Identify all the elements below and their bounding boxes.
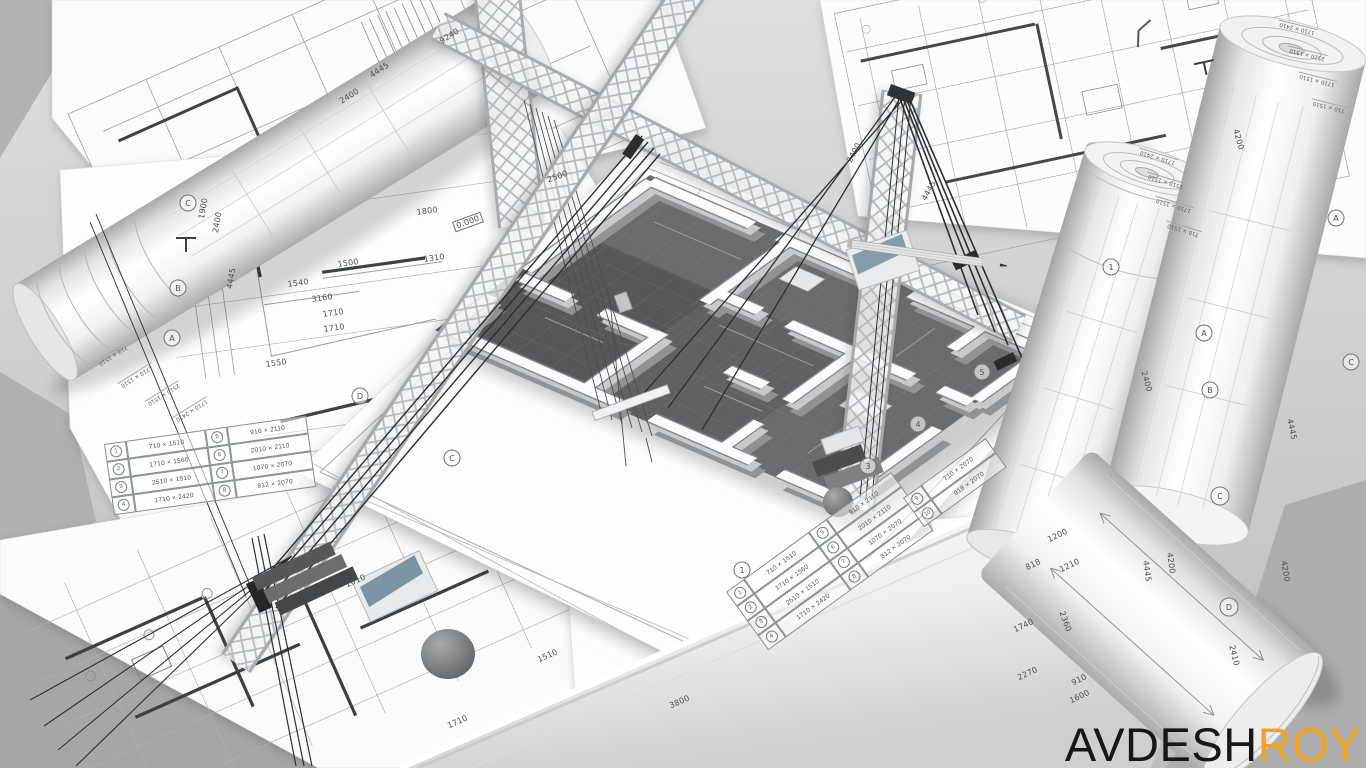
svg-text:D: D <box>357 392 363 401</box>
axis-bubble: A <box>164 330 180 346</box>
architectural-render-scene: 1 3 4 5 C A B A C 1 D C B A C D 1 710 × … <box>0 0 1366 768</box>
axis-bubble: C <box>1211 487 1229 505</box>
svg-text:4: 4 <box>915 420 920 429</box>
svg-text:B: B <box>175 284 181 293</box>
watermark-accent: ROY <box>1258 718 1361 768</box>
svg-text:5: 5 <box>979 368 984 377</box>
svg-text:1: 1 <box>1108 263 1113 272</box>
axis-bubble: 3 <box>860 458 876 474</box>
axis-bubble: 5 <box>974 364 990 380</box>
axis-bubble: A <box>1328 210 1344 226</box>
axis-bubble: C <box>1343 354 1359 370</box>
watermark: AVDESHROY <box>1065 717 1361 768</box>
svg-text:C: C <box>1348 358 1354 367</box>
axis-bubble: C <box>180 195 196 211</box>
axis-bubble: C <box>444 450 460 466</box>
svg-text:B: B <box>1207 386 1213 395</box>
watermark-primary: AVDESH <box>1065 718 1258 768</box>
axis-bubble: 4 <box>910 416 926 432</box>
axis-bubble: B <box>1202 382 1218 398</box>
svg-text:D: D <box>1226 603 1232 612</box>
svg-text:A: A <box>169 334 175 343</box>
svg-text:3: 3 <box>865 462 870 471</box>
svg-text:C: C <box>1217 492 1223 501</box>
schedule-cell: 8 <box>213 480 237 501</box>
schedule-cell: 4 <box>112 494 136 515</box>
crane-ballast-drum <box>421 629 475 679</box>
svg-text:A: A <box>1201 329 1207 338</box>
axis-bubble: B <box>170 280 186 296</box>
axis-bubble: D <box>1220 598 1238 616</box>
svg-text:1: 1 <box>739 566 744 575</box>
svg-text:C: C <box>449 454 455 463</box>
svg-text:C: C <box>185 199 191 208</box>
axis-bubble: 1 <box>1103 259 1119 275</box>
scene-canvas: 1 3 4 5 C A B A C 1 D C B A C D <box>0 0 1366 768</box>
axis-bubble: D <box>352 388 368 404</box>
svg-text:A: A <box>1333 214 1339 223</box>
axis-bubble: A <box>1196 325 1212 341</box>
